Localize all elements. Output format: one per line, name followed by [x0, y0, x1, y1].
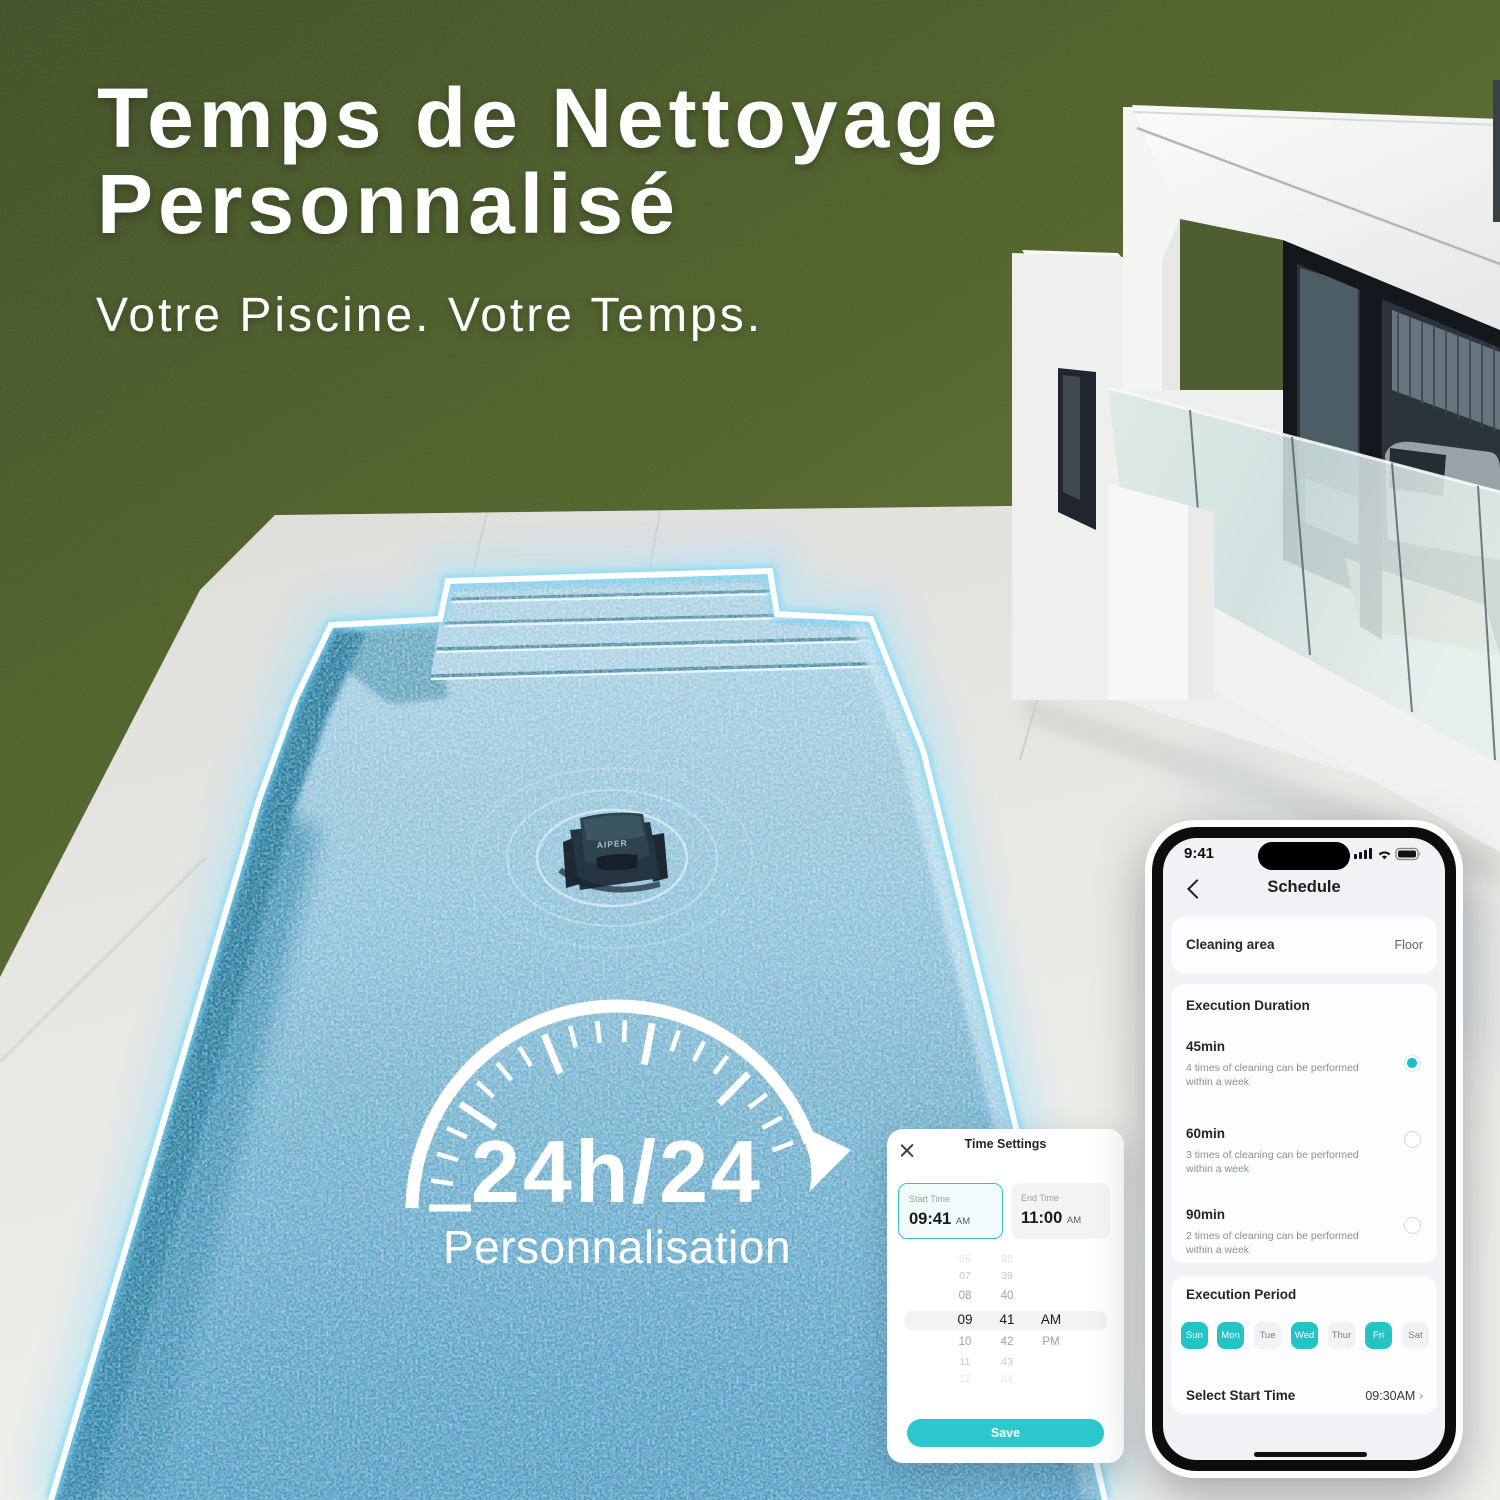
svg-text:24h/24: 24h/24 — [471, 1122, 763, 1221]
svg-text:Personnalisation: Personnalisation — [443, 1221, 791, 1273]
